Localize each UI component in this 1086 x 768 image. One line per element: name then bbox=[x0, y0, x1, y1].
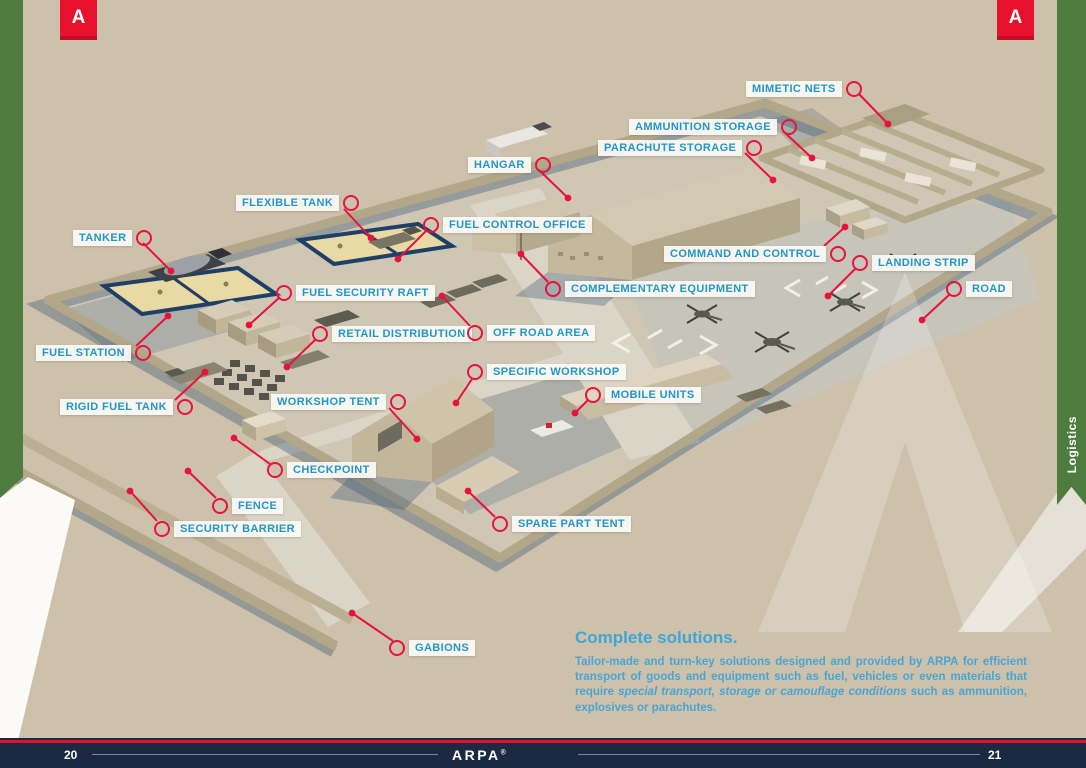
logistics-section-tab: Logistics bbox=[1057, 0, 1086, 505]
callout-specific-workshop: SPECIFIC WORKSHOP bbox=[467, 363, 626, 381]
arpa-wordmark: ARPA® bbox=[452, 747, 506, 763]
callout-label: COMPLEMENTARY EQUIPMENT bbox=[565, 281, 755, 297]
callout-ring-icon bbox=[535, 157, 551, 173]
callout-parachute-storage: PARACHUTE STORAGE bbox=[598, 139, 762, 157]
callout-ring-icon bbox=[343, 195, 359, 211]
solutions-text-block: Complete solutions. Tailor-made and turn… bbox=[575, 628, 1027, 716]
solutions-emphasis: special transport, storage or camouflage… bbox=[618, 686, 906, 698]
registered-mark: ® bbox=[501, 749, 506, 756]
callout-mobile-units: MOBILE UNITS bbox=[585, 386, 701, 404]
callout-road: ROAD bbox=[946, 280, 1012, 298]
arpa-corner-logo-right: A bbox=[997, 0, 1034, 40]
callout-label: COMMAND AND CONTROL bbox=[664, 246, 826, 262]
callout-security-barrier: SECURITY BARRIER bbox=[154, 520, 301, 538]
callout-label: SPECIFIC WORKSHOP bbox=[487, 364, 626, 380]
callout-ring-icon bbox=[746, 140, 762, 156]
callout-label: SPARE PART TENT bbox=[512, 516, 631, 532]
callout-fuel-security-raft: FUEL SECURITY RAFT bbox=[276, 284, 435, 302]
callout-complementary-equipment: COMPLEMENTARY EQUIPMENT bbox=[545, 280, 755, 298]
callout-command-and-control: COMMAND AND CONTROL bbox=[664, 245, 846, 263]
callout-ring-icon bbox=[467, 325, 483, 341]
callout-ring-icon bbox=[852, 255, 868, 271]
callout-flexible-tank: FLEXIBLE TANK bbox=[236, 194, 359, 212]
callout-spare-part-tent: SPARE PART TENT bbox=[492, 515, 631, 533]
callout-label: ROAD bbox=[966, 281, 1012, 297]
callout-label: SECURITY BARRIER bbox=[174, 521, 301, 537]
callout-ring-icon bbox=[467, 364, 483, 380]
callout-ring-icon bbox=[781, 119, 797, 135]
callout-label: FUEL SECURITY RAFT bbox=[296, 285, 435, 301]
callout-ring-icon bbox=[135, 345, 151, 361]
callout-ring-icon bbox=[267, 462, 283, 478]
callout-gabions: GABIONS bbox=[389, 639, 475, 657]
footer-rule-right bbox=[578, 754, 980, 755]
callout-ring-icon bbox=[946, 281, 962, 297]
callout-rigid-fuel-tank: RIGID FUEL TANK bbox=[60, 398, 193, 416]
callout-ring-icon bbox=[177, 399, 193, 415]
callout-workshop-tent: WORKSHOP TENT bbox=[271, 393, 406, 411]
callout-ring-icon bbox=[389, 640, 405, 656]
callout-label: GABIONS bbox=[409, 640, 475, 656]
callout-label: LANDING STRIP bbox=[872, 255, 975, 271]
callout-ring-icon bbox=[545, 281, 561, 297]
brochure-page-spread: MIMETIC NETS AMMUNITION STORAGE PARACHUT… bbox=[0, 0, 1086, 768]
logo-letter: A bbox=[1009, 7, 1023, 29]
callout-ring-icon bbox=[390, 394, 406, 410]
callout-label: TANKER bbox=[73, 230, 132, 246]
callout-ring-icon bbox=[312, 326, 328, 342]
callout-label: WORKSHOP TENT bbox=[271, 394, 386, 410]
footer-rule-left bbox=[92, 754, 438, 755]
callout-ring-icon bbox=[154, 521, 170, 537]
callout-label: FENCE bbox=[232, 498, 283, 514]
callout-ring-icon bbox=[212, 498, 228, 514]
solutions-heading: Complete solutions. bbox=[575, 628, 1027, 648]
callout-fuel-control-office: FUEL CONTROL OFFICE bbox=[423, 216, 592, 234]
callout-checkpoint: CHECKPOINT bbox=[267, 461, 376, 479]
callout-ring-icon bbox=[423, 217, 439, 233]
callout-label: OFF ROAD AREA bbox=[487, 325, 595, 341]
callout-ring-icon bbox=[585, 387, 601, 403]
callout-label: MOBILE UNITS bbox=[605, 387, 701, 403]
callout-label: RIGID FUEL TANK bbox=[60, 399, 173, 415]
callout-label: FUEL STATION bbox=[36, 345, 131, 361]
callout-label: MIMETIC NETS bbox=[746, 81, 842, 97]
callout-ring-icon bbox=[136, 230, 152, 246]
callout-fuel-station: FUEL STATION bbox=[36, 344, 151, 362]
callout-label: HANGAR bbox=[468, 157, 531, 173]
callout-off-road-area: OFF ROAD AREA bbox=[467, 324, 595, 342]
callout-label: FLEXIBLE TANK bbox=[236, 195, 339, 211]
callout-ring-icon bbox=[492, 516, 508, 532]
callout-label: PARACHUTE STORAGE bbox=[598, 140, 742, 156]
logo-letter: A bbox=[72, 7, 86, 29]
callout-ring-icon bbox=[830, 246, 846, 262]
footer-bar: 20 ARPA® 21 bbox=[0, 740, 1086, 768]
callout-retail-distribution: RETAIL DISTRIBUTION bbox=[312, 325, 472, 343]
callout-ring-icon bbox=[276, 285, 292, 301]
callout-mimetic-nets: MIMETIC NETS bbox=[746, 80, 862, 98]
section-tab-label: Logistics bbox=[1065, 416, 1079, 473]
callout-label: RETAIL DISTRIBUTION bbox=[332, 326, 472, 342]
left-green-ribbon bbox=[0, 0, 23, 498]
callout-tanker: TANKER bbox=[73, 229, 152, 247]
callout-ammunition-storage: AMMUNITION STORAGE bbox=[629, 118, 797, 136]
callout-label: FUEL CONTROL OFFICE bbox=[443, 217, 592, 233]
left-page-number: 20 bbox=[64, 748, 77, 762]
right-page-number: 21 bbox=[988, 748, 1001, 762]
arpa-corner-logo-left: A bbox=[60, 0, 97, 40]
callout-hangar: HANGAR bbox=[468, 156, 551, 174]
callout-landing-strip: LANDING STRIP bbox=[852, 254, 975, 272]
callout-ring-icon bbox=[846, 81, 862, 97]
solutions-body: Tailor-made and turn-key solutions desig… bbox=[575, 655, 1027, 716]
callout-label: CHECKPOINT bbox=[287, 462, 376, 478]
callout-fence: FENCE bbox=[212, 497, 283, 515]
callout-label: AMMUNITION STORAGE bbox=[629, 119, 777, 135]
